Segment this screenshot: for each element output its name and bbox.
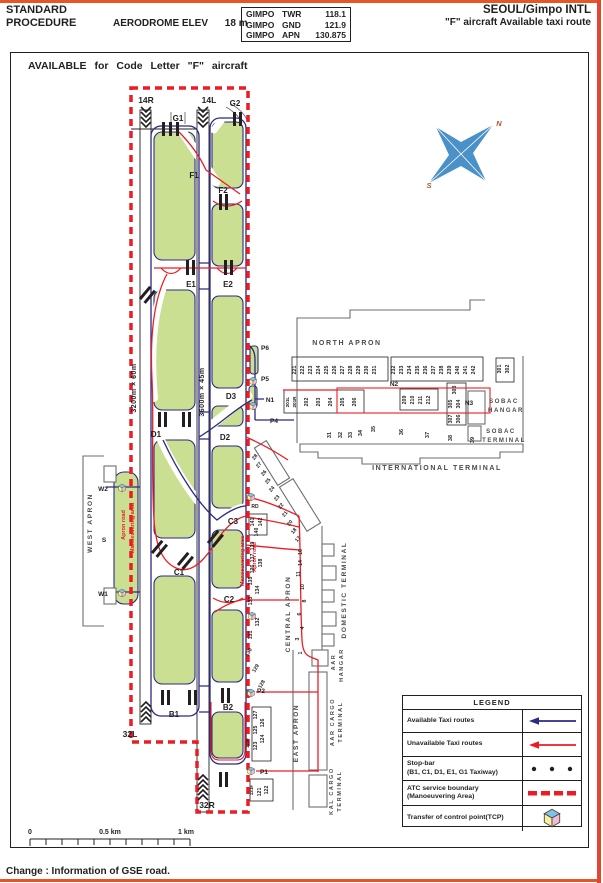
legend-row-tcp: Transfer of control point(TCP) (403, 806, 581, 831)
gate-201r: 201R (292, 396, 297, 408)
label-e1: E1 (186, 280, 196, 289)
gate-11: 11 (296, 571, 302, 577)
gate-224: 224 (316, 366, 322, 375)
gate-122: 122 (264, 786, 270, 795)
label-domestic-terminal: DOMESTIC TERMINAL (341, 542, 348, 639)
label-0: 0 (28, 829, 32, 836)
label-e2: E2 (223, 280, 233, 289)
legend-label: Transfer of control point(TCP) (407, 814, 518, 823)
label-sobac: SOBAC (486, 429, 516, 435)
label-p6: P6 (261, 345, 269, 352)
label-w2: W2 (98, 486, 108, 493)
label-hangar: HANGAR (339, 648, 345, 682)
gate-301: 301 (497, 365, 503, 374)
gate-230: 230 (364, 366, 370, 375)
gate-212: 212 (426, 396, 432, 405)
label-n1: N1 (266, 397, 275, 404)
legend-row-stopbar: Stop-bar (B1, C1, D1, E1, G1 Taxiway) (403, 757, 581, 781)
gate-302: 302 (505, 365, 511, 374)
legend-label: Stop-bar (407, 760, 518, 769)
gate-240: 240 (455, 366, 461, 375)
gate-226: 226 (332, 366, 338, 375)
legend-row-available: Available Taxi routes (403, 710, 581, 733)
gate-17: 17 (294, 535, 302, 543)
gate-132: 132 (255, 618, 261, 627)
gate-123: 123 (253, 742, 259, 751)
label-east-apron: EAST APRON (293, 704, 300, 762)
gate-203: 203 (316, 398, 322, 407)
gate-140: 140 (254, 528, 260, 537)
label-aar: AAR (331, 654, 337, 671)
legend: LEGEND Available Taxi routes Unavailable… (402, 695, 582, 827)
label-f2: F2 (218, 186, 228, 195)
gate-4: 4 (300, 626, 306, 629)
label-north-apron: NORTH APRON (312, 340, 381, 347)
gate-210: 210 (410, 396, 416, 405)
label-14l: 14L (202, 95, 217, 105)
label-f1: F1 (189, 171, 199, 180)
gate-241: 241 (463, 366, 469, 375)
label-sobac: SOBAC (489, 399, 519, 405)
gate-305: 305 (448, 400, 454, 409)
gate-306: 306 (456, 415, 462, 424)
label-0-5-km: 0.5 km (99, 829, 121, 836)
gate-209: 209 (402, 396, 408, 405)
green-islands (114, 122, 258, 758)
tcp-cube-icon (526, 808, 578, 830)
gate-222: 222 (300, 366, 306, 375)
gate-239: 239 (447, 366, 453, 375)
label-c2: C2 (224, 595, 235, 604)
gate-242: 242 (471, 366, 477, 375)
gate-23: 23 (273, 494, 281, 502)
gate-138: 138 (258, 559, 264, 568)
gate-126: 126 (260, 719, 266, 728)
gate-6: 6 (297, 612, 303, 615)
gate-202: 202 (304, 398, 310, 407)
stop-bar-dots-icon (526, 763, 578, 775)
gate-32: 32 (338, 432, 344, 438)
gate-235: 235 (415, 366, 421, 375)
label-hangar: HANGAR (488, 408, 524, 414)
label-terminal: TERMINAL (337, 770, 343, 811)
gate-229: 229 (356, 366, 362, 375)
gate-129: 129 (251, 663, 261, 674)
gate-221: 221 (292, 366, 298, 375)
gate-37: 37 (425, 432, 431, 438)
gate-231: 231 (372, 366, 378, 375)
gate-128: 128 (257, 679, 267, 690)
kal-cargo-terminal (309, 775, 327, 807)
gate-24: 24 (268, 485, 276, 493)
change-note: Change : Information of GSE road. (6, 866, 170, 877)
gate-136: 136 (250, 565, 256, 574)
label-central-apron: CENTRAL APRON (285, 576, 292, 653)
gate-39: 39 (470, 437, 476, 443)
gate-121f: 121F (249, 785, 254, 796)
label-b1: B1 (169, 710, 180, 719)
legend-row-unavailable: Unavailable Taxi routes (403, 733, 581, 757)
gate-223: 223 (308, 366, 314, 375)
gate-26: 26 (260, 469, 268, 477)
label-aar-cargo: AAR CARGO (330, 698, 336, 746)
label-g1: G1 (173, 114, 184, 123)
legend-sublabel: (B1, C1, D1, E1, G1 Taxiway) (407, 769, 518, 778)
gate-31: 31 (327, 432, 333, 438)
gate-25: 25 (264, 477, 272, 485)
label-c1: C1 (174, 568, 185, 577)
gate-16: 16 (298, 549, 304, 555)
gate-34: 34 (358, 429, 364, 436)
gate-124: 124 (260, 735, 266, 744)
gate-137: 137 (250, 554, 256, 563)
label-s: S (102, 537, 107, 544)
gate-228: 228 (348, 366, 354, 375)
gate-233: 233 (399, 366, 405, 375)
label-apron-road: Apron road (121, 510, 127, 540)
scale-bar (30, 839, 190, 846)
label-rd: RD (251, 504, 259, 510)
compass-rose (429, 125, 493, 183)
label-p4: P4 (270, 418, 278, 425)
label-3200m-60m: 3200m × 60m (131, 363, 138, 412)
legend-label: Available Taxi routes (407, 717, 518, 726)
gate-227: 227 (340, 366, 346, 375)
label-g2: G2 (230, 99, 241, 108)
gate-1: 1 (298, 651, 304, 654)
gate-10: 10 (300, 584, 306, 590)
gate-236: 236 (423, 366, 429, 375)
label-32r: 32R (199, 800, 215, 810)
label-b2: B2 (223, 703, 234, 712)
gate-237: 237 (431, 366, 437, 375)
gate-201l: 201L (285, 397, 290, 408)
label-n2: N2 (390, 381, 399, 388)
label-n3: N3 (465, 400, 474, 407)
gate-142: 142 (258, 518, 264, 527)
legend-label: Unavailable Taxi routes (407, 740, 518, 749)
gate-27: 27 (255, 461, 263, 469)
label-14r: 14R (138, 95, 154, 105)
label-kal-cargo: KAL CARGO (329, 767, 335, 815)
legend-title: LEGEND (403, 696, 581, 710)
label-n: N (496, 119, 502, 128)
gate-38: 38 (448, 435, 454, 441)
legend-row-boundary: ATC service boundary (Manoeuvering Area) (403, 781, 581, 806)
gate-232: 232 (391, 366, 397, 375)
label-w1: W1 (98, 591, 108, 598)
gate-127: 127 (253, 711, 259, 720)
gate-303: 303 (452, 386, 458, 395)
gate-225: 225 (324, 366, 330, 375)
gate-141: 141 (250, 518, 256, 527)
gate-18: 18 (290, 527, 298, 535)
label-p1: P1 (260, 769, 268, 776)
gate-133: 133 (248, 597, 254, 606)
label-32l: 32L (123, 729, 138, 739)
gate-134: 134 (255, 586, 261, 595)
label-d1: D1 (151, 430, 162, 439)
gate-211: 211 (418, 396, 424, 404)
unavailable-route-arrow-icon (526, 739, 578, 751)
gate-125: 125 (253, 726, 259, 735)
gate-234: 234 (407, 366, 413, 375)
sobac-hangar (468, 391, 485, 424)
bottom-accent-line (0, 879, 597, 882)
gate-121: 121 (257, 788, 263, 797)
label-d3: D3 (226, 392, 237, 401)
gate-238: 238 (439, 366, 445, 375)
legend-label: ATC service boundary (407, 785, 518, 794)
label-1-km: 1 km (178, 829, 194, 836)
available-route-arrow-icon (526, 715, 578, 727)
label-d2: D2 (220, 433, 231, 442)
gate-135: 135 (248, 577, 254, 586)
international-terminal (300, 444, 523, 464)
runway-14r-32l (140, 110, 151, 724)
label-terminal: TERMINAL (482, 438, 526, 444)
gate-139: 139 (250, 542, 256, 551)
gate-204: 204 (328, 398, 334, 407)
label-3600m-45m: 3600m × 45m (199, 367, 206, 416)
gate-8: 8 (302, 599, 308, 602)
label-p5: P5 (261, 376, 269, 383)
label-west-apron: WEST APRON (87, 493, 94, 553)
gate-36: 36 (399, 429, 405, 435)
label-manoeuvering-area: Manoeuvering area (240, 535, 246, 586)
gate-304: 304 (456, 400, 462, 409)
label-terminal: TERMINAL (338, 701, 344, 742)
gate-206: 206 (352, 398, 358, 407)
gate-3: 3 (295, 637, 301, 640)
gate-307: 307 (448, 415, 454, 424)
label-international-terminal: INTERNATIONAL TERMINAL (372, 465, 502, 472)
atc-boundary-dash-icon (526, 787, 578, 799)
label-s: S (426, 181, 431, 190)
label-manoeuvering-area: Manoeuvering area (130, 502, 136, 553)
gate-205: 205 (340, 398, 346, 407)
gate-131: 131 (248, 631, 254, 640)
gate-35: 35 (371, 426, 377, 432)
legend-sublabel: (Manoeuvering Area) (407, 793, 518, 802)
gate-14: 14 (298, 560, 304, 566)
gate-33: 33 (348, 432, 354, 438)
gate-123f: 123F (245, 738, 250, 748)
label-c3: C3 (228, 517, 239, 526)
